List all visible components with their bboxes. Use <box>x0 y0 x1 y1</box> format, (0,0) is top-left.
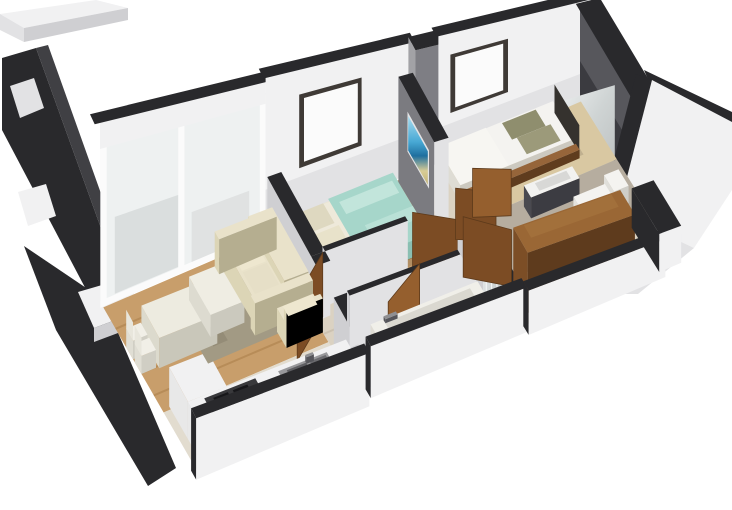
kitchen-front-wall-left-face <box>191 408 196 479</box>
bathroom1-front-wall-left-face <box>366 337 371 399</box>
floorplan-render-stage <box>0 0 732 510</box>
corridor-door-2 <box>473 168 512 217</box>
entrance-front-wall-left-face <box>523 281 528 335</box>
bathroom1-nw-wall-left-face <box>347 291 350 348</box>
scene-layers <box>0 0 732 486</box>
apartment-3d-floorplan <box>0 0 732 510</box>
glass-mullion <box>178 118 184 274</box>
glass-frame-left <box>100 134 106 307</box>
armchair-back-left-face <box>284 308 287 348</box>
